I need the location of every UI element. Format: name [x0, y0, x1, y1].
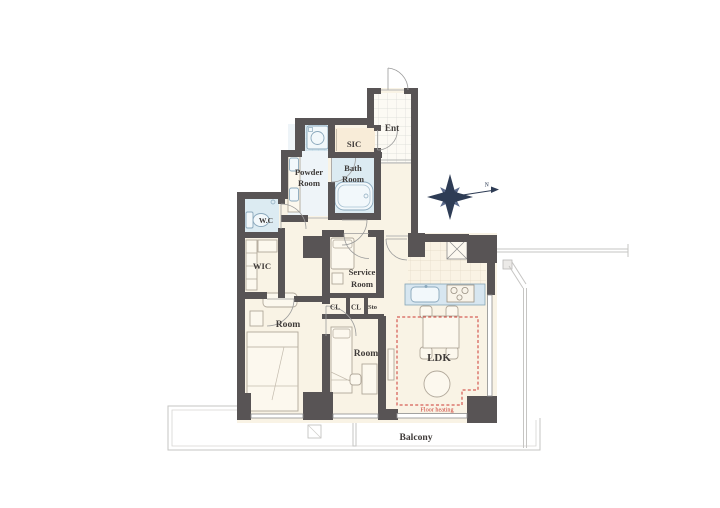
neighbor-outline	[497, 244, 628, 448]
tv-board-icon	[388, 349, 394, 380]
label-wic: WIC	[253, 261, 271, 271]
label-room-center: Room	[354, 348, 379, 359]
label-balcony: Balcony	[399, 432, 432, 443]
label-compass-north: N	[483, 181, 490, 189]
compass-rose-icon: N	[427, 174, 499, 220]
label-ent: Ent	[385, 123, 400, 133]
stove-icon	[447, 285, 474, 302]
washing-machine-icon	[307, 126, 328, 149]
label-bath-1: Bath	[344, 163, 362, 173]
single-bed-icon	[331, 327, 352, 393]
label-room-left: Room	[276, 319, 301, 330]
label-wc: W.C	[259, 216, 273, 225]
label-ldk: LDK	[427, 352, 451, 364]
outdoor-unit-icon	[308, 425, 321, 438]
label-service-2: Room	[351, 279, 374, 289]
kitchen-sink-icon	[411, 285, 439, 302]
label-service-1: Service	[349, 267, 376, 277]
label-sic: SIC	[347, 139, 361, 149]
round-table-icon	[424, 371, 450, 397]
label-cl2: CL	[351, 304, 361, 312]
label-powder-1: Powder	[295, 167, 323, 177]
floor-plan-drawing: Ent SIC Powder Room Bath Room W.C WIC Se…	[0, 0, 720, 508]
door-swing-arc	[388, 68, 408, 90]
bathtub-icon	[335, 182, 373, 210]
label-sto: Sto	[368, 304, 377, 311]
floor-plan-page: Ent SIC Powder Room Bath Room W.C WIC Se…	[0, 0, 720, 508]
label-floor-heating: Floor heating	[420, 407, 453, 414]
label-cl1: CL	[330, 304, 340, 312]
label-powder-2: Room	[298, 178, 321, 188]
label-bath-2: Room	[342, 174, 365, 184]
